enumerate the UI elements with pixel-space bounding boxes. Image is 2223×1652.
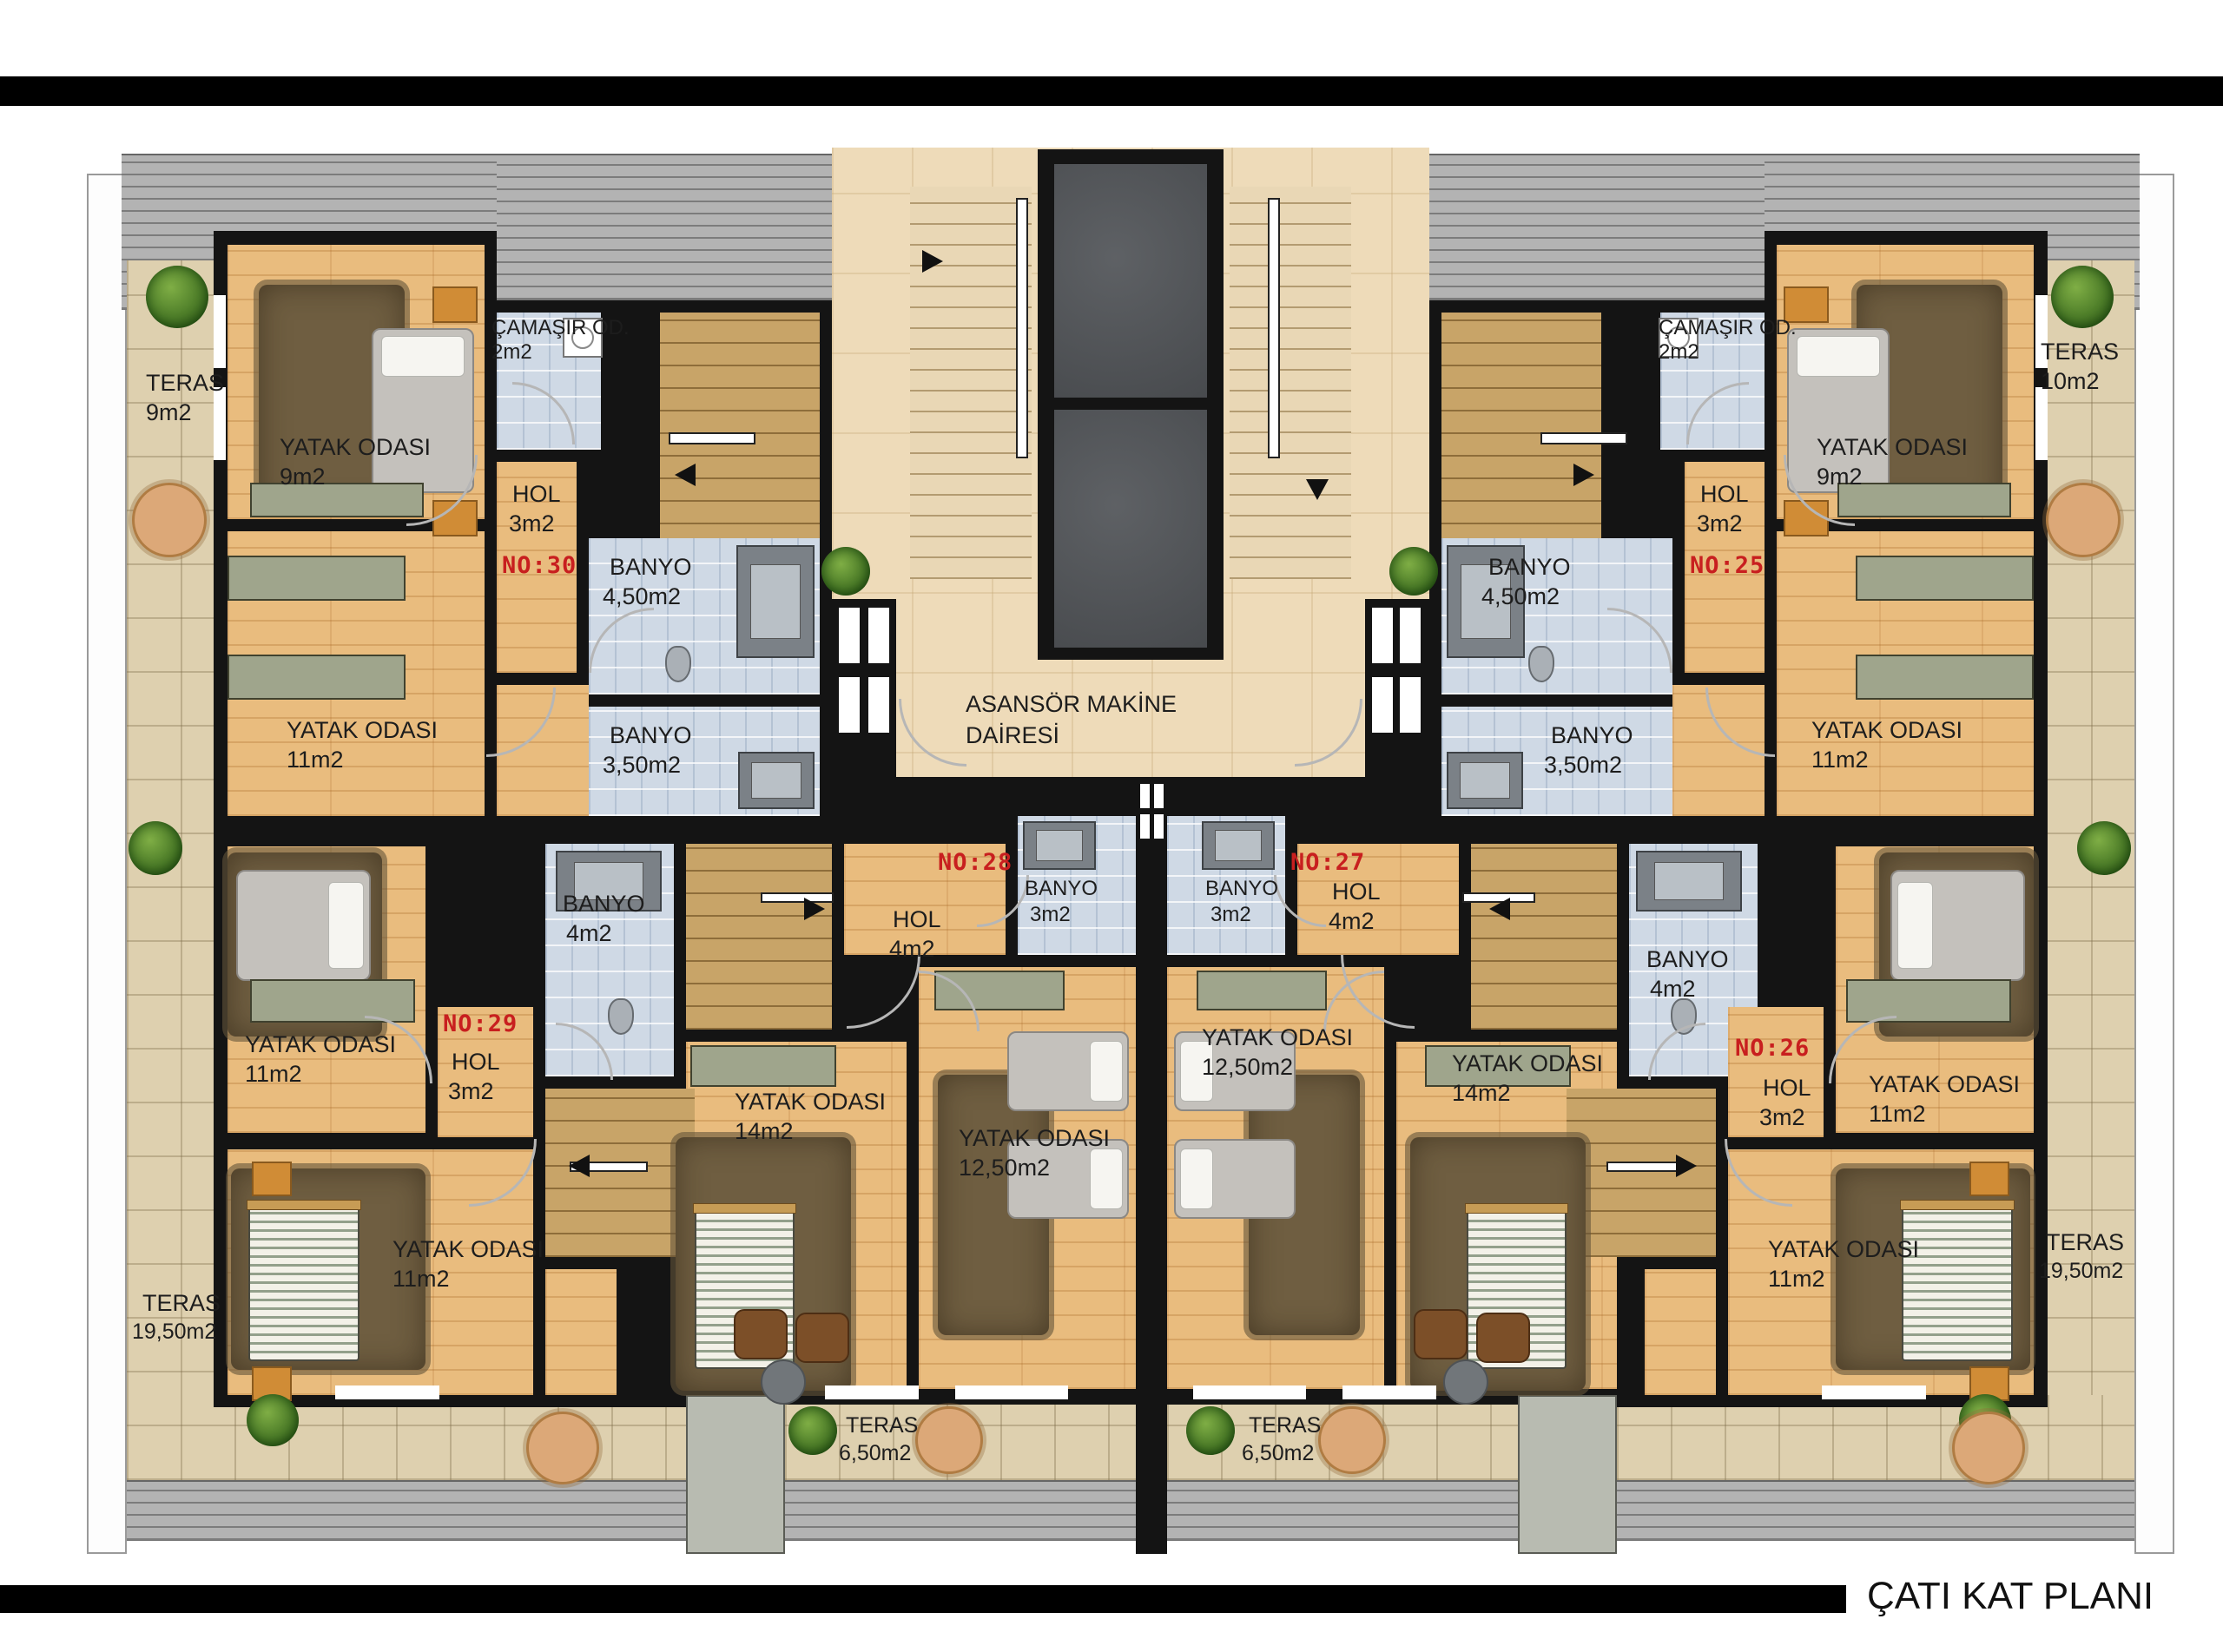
- eave-bottom-4: [1617, 1480, 2134, 1541]
- armchair: [795, 1313, 849, 1363]
- window-slot: [1342, 1385, 1436, 1399]
- stair-railing: [1268, 198, 1280, 458]
- room-label: 3m2: [448, 1080, 494, 1103]
- plant: [821, 547, 870, 596]
- plant: [788, 1406, 837, 1455]
- nightstand: [1969, 1162, 2009, 1196]
- room-label: YATAK ODASI: [735, 1090, 886, 1114]
- shower-cabin: [1202, 821, 1275, 870]
- closet: [228, 655, 406, 700]
- terrace-table: [132, 483, 207, 557]
- terrace-table: [2046, 483, 2121, 557]
- eave-bottom-1: [127, 1480, 686, 1541]
- pillow: [328, 882, 364, 968]
- closet: [1856, 655, 2034, 700]
- room-label: 3,50m2: [1544, 754, 1622, 777]
- stair-railing: [1540, 432, 1627, 444]
- elevator-cell-top: [1054, 164, 1207, 398]
- window-slot: [335, 1385, 439, 1399]
- room-label: TERAS: [846, 1415, 918, 1437]
- room-label: 3m2: [1697, 512, 1743, 536]
- room-label: 9m2: [146, 401, 192, 425]
- room-label: 3m2: [1759, 1106, 1805, 1129]
- terrace-table: [1318, 1406, 1386, 1474]
- stair-direction-arrow: [1676, 1155, 1708, 1177]
- room-label: 4,50m2: [1481, 585, 1560, 609]
- bedroom-ext-no29: [545, 1269, 617, 1395]
- closet: [1837, 483, 2011, 517]
- room-label: 3m2: [1030, 905, 1071, 925]
- shower-cabin: [738, 752, 815, 809]
- armchair: [1476, 1313, 1530, 1363]
- apartment-number: NO:30: [502, 554, 577, 577]
- apartment-number: NO:25: [1690, 554, 1765, 577]
- room-label: YATAK ODASI: [1817, 436, 1968, 459]
- shower-cabin: [1636, 851, 1742, 912]
- room-label: 3m2: [509, 512, 555, 536]
- room-label: YATAK ODASI: [392, 1238, 544, 1261]
- stair-railing: [669, 432, 755, 444]
- room-label: YATAK ODASI: [1202, 1026, 1353, 1050]
- room-label: 11m2: [1869, 1102, 1926, 1126]
- pillow: [1090, 1149, 1122, 1209]
- stair-direction-arrow: [922, 250, 954, 273]
- room-label: YATAK ODASI: [245, 1033, 396, 1056]
- room-label: YATAK ODASI: [1768, 1238, 1919, 1261]
- closet: [228, 556, 406, 601]
- pillow: [1897, 882, 1933, 968]
- pillow: [1090, 1041, 1122, 1102]
- apartment-number: NO:27: [1290, 851, 1365, 874]
- closet: [250, 483, 424, 517]
- room-label: TERAS: [142, 1292, 221, 1315]
- window-slot: [1193, 1385, 1306, 1399]
- terrace-divider-left: [686, 1395, 785, 1554]
- pillow: [1797, 336, 1880, 377]
- window-slot: [955, 1385, 1068, 1399]
- bed: [1890, 870, 2025, 981]
- nightstand: [252, 1162, 292, 1196]
- room-label: HOL: [1700, 483, 1749, 506]
- nightstand: [432, 286, 478, 323]
- closet: [250, 979, 415, 1023]
- plant: [1186, 1406, 1235, 1455]
- window-slot: [1154, 784, 1164, 808]
- room-label: BANYO: [1488, 556, 1571, 579]
- room-label: BANYO: [1025, 879, 1098, 899]
- terrace-right-vertical: [2037, 260, 2134, 1480]
- roof-patch-right: [1429, 154, 1765, 300]
- toilet: [1528, 646, 1554, 682]
- room-label: BANYO: [1205, 879, 1278, 899]
- roof-patch-left: [497, 154, 832, 300]
- bed: [1007, 1031, 1129, 1111]
- stairs-no27: [1471, 844, 1617, 1030]
- room-label: BANYO: [610, 724, 692, 747]
- room-label: 4m2: [566, 922, 612, 945]
- stair-railing: [1016, 198, 1028, 458]
- stairs-core-left: [910, 187, 1032, 579]
- room-label: 6,50m2: [1242, 1443, 1314, 1464]
- window-slot: [839, 608, 860, 663]
- closet: [1856, 556, 2034, 601]
- stair-direction-arrow: [1306, 479, 1329, 511]
- shower-cabin: [1447, 752, 1523, 809]
- stair-direction-arrow: [1478, 898, 1510, 920]
- terrace-right-bottom: [1617, 1395, 2134, 1480]
- armchair: [734, 1309, 788, 1359]
- headboard: [1465, 1203, 1568, 1214]
- plant: [1389, 547, 1438, 596]
- room-label: 9m2: [280, 465, 326, 489]
- closet: [1197, 971, 1327, 1010]
- striped-bed: [1902, 1205, 2013, 1361]
- elevator-cell-bottom: [1054, 410, 1207, 648]
- room-label: 4m2: [1650, 977, 1696, 1001]
- fascia-left: [87, 174, 127, 1554]
- coffee-table: [1443, 1359, 1488, 1405]
- eave-bottom-3: [1167, 1480, 1518, 1541]
- toilet: [608, 998, 634, 1035]
- pillow: [1180, 1149, 1212, 1209]
- floor-plan-canvas: TERAS9m2YATAK ODASI9m2ÇAMAŞIR OD.2m2HOL3…: [0, 0, 2223, 1652]
- room-label: HOL: [452, 1050, 500, 1074]
- room-label: YATAK ODASI: [280, 436, 431, 459]
- room-label: BANYO: [610, 556, 692, 579]
- stair-railing: [1606, 1162, 1685, 1172]
- terrace-table: [915, 1406, 983, 1474]
- terrace-table: [526, 1412, 599, 1484]
- room-label: 4m2: [1329, 910, 1375, 933]
- terrace-divider-right: [1518, 1395, 1617, 1554]
- pillow: [381, 336, 465, 377]
- room-label: YATAK ODASI: [287, 719, 438, 742]
- armchair: [1414, 1309, 1468, 1359]
- room-label: 19,50m2: [132, 1321, 216, 1343]
- terrace-left-bottom: [127, 1395, 686, 1480]
- coffee-table: [761, 1359, 806, 1405]
- window-slot: [1822, 1385, 1926, 1399]
- window-slot: [214, 295, 226, 368]
- room-label: 14m2: [1452, 1082, 1511, 1105]
- room-label: YATAK ODASI: [1452, 1052, 1603, 1076]
- room-label: DAİRESİ: [966, 724, 1059, 747]
- room-label: 3,50m2: [603, 754, 681, 777]
- room-label: 11m2: [245, 1063, 302, 1086]
- striped-bed: [248, 1205, 360, 1361]
- room-label: 4,50m2: [603, 585, 681, 609]
- room-label: TERAS: [146, 372, 224, 395]
- room-label: 2m2: [491, 342, 532, 363]
- window-slot: [1400, 608, 1421, 663]
- room-label: YATAK ODASI: [1869, 1073, 2020, 1096]
- room-label: 12,50m2: [959, 1156, 1050, 1180]
- room-label: BANYO: [563, 892, 645, 916]
- window-slot: [868, 608, 889, 663]
- room-label: BANYO: [1646, 948, 1729, 971]
- room-label: 11m2: [392, 1267, 450, 1291]
- stair-direction-arrow: [804, 898, 836, 920]
- plant: [129, 821, 182, 875]
- bedroom-ext-no26: [1645, 1269, 1716, 1395]
- room-label: YATAK ODASI: [959, 1127, 1110, 1150]
- stair-direction-arrow: [557, 1155, 590, 1177]
- shower-cabin: [736, 545, 815, 658]
- floor-plan: TERAS9m2YATAK ODASI9m2ÇAMAŞIR OD.2m2HOL3…: [0, 0, 2223, 1652]
- room-label: ÇAMAŞIR OD.: [491, 318, 630, 339]
- eave-bottom-2: [785, 1480, 1136, 1541]
- window-slot: [2035, 387, 2048, 460]
- plant: [146, 266, 208, 328]
- fascia-right: [2134, 174, 2174, 1554]
- bottom-border-bar: [0, 1585, 1846, 1613]
- room-label: 12,50m2: [1202, 1056, 1293, 1079]
- room-label: 14m2: [735, 1120, 794, 1143]
- headboard: [247, 1200, 361, 1210]
- room-label: TERAS: [1249, 1415, 1321, 1437]
- room-label: ASANSÖR MAKİNE: [966, 693, 1177, 716]
- bed: [1174, 1139, 1296, 1219]
- room-label: TERAS: [2046, 1231, 2124, 1254]
- room-label: HOL: [512, 483, 561, 506]
- window-slot: [1140, 784, 1150, 808]
- toilet: [665, 646, 691, 682]
- closet: [1846, 979, 2011, 1023]
- closet: [690, 1045, 836, 1087]
- top-border-bar: [0, 76, 2223, 106]
- room-label: YATAK ODASI: [1811, 719, 1962, 742]
- window-slot: [1140, 814, 1150, 839]
- window-slot: [1372, 608, 1393, 663]
- room-label: 11m2: [287, 748, 344, 772]
- window-slot: [214, 387, 226, 460]
- apartment-number: NO:29: [443, 1012, 518, 1036]
- room-label: HOL: [1763, 1076, 1811, 1100]
- stair-direction-arrow: [1573, 464, 1606, 486]
- shower-cabin: [1023, 821, 1096, 870]
- plant: [2077, 821, 2131, 875]
- room-label: 19,50m2: [2039, 1260, 2123, 1282]
- room-label: 9m2: [1817, 465, 1863, 489]
- window-slot: [1372, 677, 1393, 733]
- window-slot: [868, 677, 889, 733]
- room-label: 4m2: [889, 938, 935, 961]
- stairs-core-right: [1230, 187, 1351, 579]
- shaft-center: [1136, 777, 1167, 1554]
- room-label: 3m2: [1210, 905, 1251, 925]
- plant: [2051, 266, 2114, 328]
- window-slot: [1154, 814, 1164, 839]
- room-label: HOL: [893, 908, 941, 931]
- headboard: [693, 1203, 796, 1214]
- window-slot: [1400, 677, 1421, 733]
- bed: [236, 870, 371, 981]
- stair-direction-arrow: [663, 464, 696, 486]
- page-title: ÇATI KAT PLANI: [1867, 1575, 2154, 1618]
- plant: [247, 1394, 299, 1446]
- headboard: [1900, 1200, 2015, 1210]
- stairs-no28: [686, 844, 832, 1030]
- room-label: 10m2: [2041, 370, 2100, 393]
- room-label: 11m2: [1811, 748, 1869, 772]
- window-slot: [825, 1385, 919, 1399]
- room-label: HOL: [1332, 880, 1381, 904]
- room-label: 6,50m2: [839, 1443, 911, 1464]
- apartment-number: NO:26: [1735, 1037, 1810, 1060]
- window-slot: [839, 677, 860, 733]
- apartment-number: NO:28: [938, 851, 1013, 874]
- room-label: 2m2: [1659, 342, 1699, 363]
- room-label: ÇAMAŞIR OD.: [1659, 318, 1797, 339]
- terrace-table: [1952, 1412, 2025, 1484]
- room-label: BANYO: [1551, 724, 1633, 747]
- room-label: TERAS: [2041, 340, 2119, 364]
- room-label: 11m2: [1768, 1267, 1825, 1291]
